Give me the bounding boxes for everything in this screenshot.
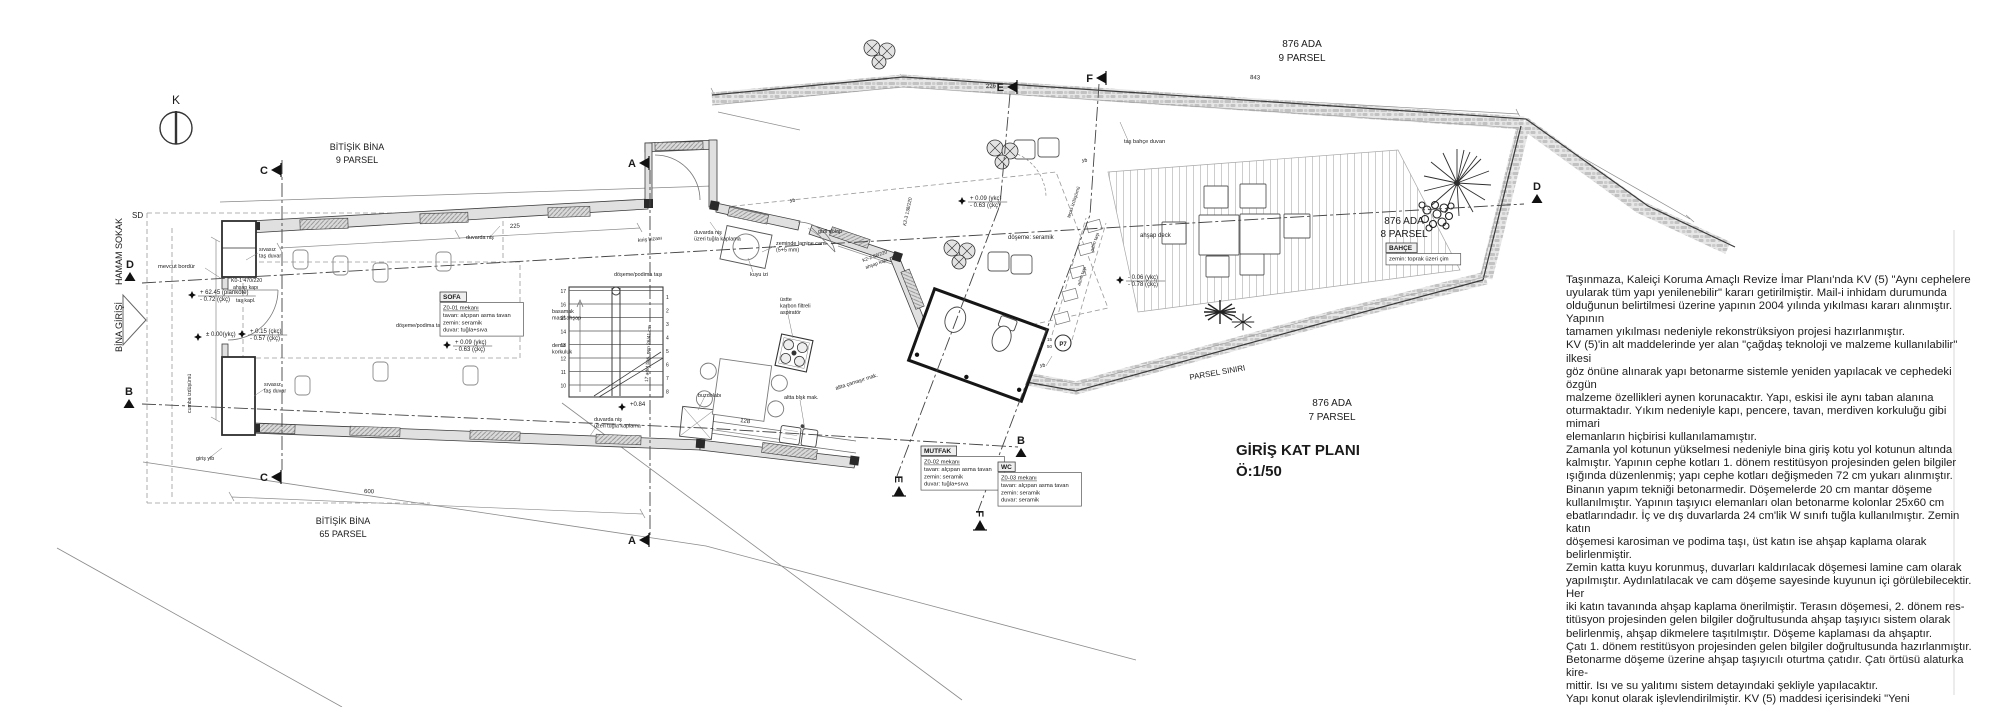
- section-c-top-letter: C: [260, 165, 268, 177]
- label-bitisik-bina-9: BİTİŞİK BİNA9 PARSEL: [330, 142, 385, 165]
- ann-mevcut-bordur: mevcut bordür: [158, 264, 195, 270]
- room-sofa-line-3: duvar: tuğla+sıva: [443, 328, 488, 334]
- ann-kiris: kiriş hizası: [638, 235, 663, 243]
- north-letter: K: [172, 93, 180, 107]
- room-sofa-line-2: zemin: seramik: [443, 320, 482, 326]
- room-mutfak-line-3: duvar: tuğla+sıva: [924, 482, 969, 488]
- room-mutfak-line-0: Z0-02 mekanı: [924, 460, 960, 466]
- room-sofa-line-1: tavan: alçıpan asma tavan: [443, 313, 511, 319]
- agave-icon: [1204, 300, 1254, 330]
- ann-p7-15: 15: [1047, 337, 1053, 342]
- ann-yb-2: yb: [790, 198, 796, 204]
- ann-ahsap-deck: ahşap deck: [1140, 233, 1172, 239]
- ann-podima-2: döşeme/podima taşı: [614, 272, 663, 278]
- label-parsel-siniri: PARSEL SINIRI: [1189, 363, 1246, 382]
- section-d-right-letter: D: [1533, 181, 1541, 193]
- label-hamam-sokak: HAMAM SOKAK: [114, 218, 124, 285]
- label-876-ada-9: 876 ADA9 PARSEL: [1278, 39, 1325, 64]
- stair-number-left: 13: [560, 343, 566, 349]
- label-876-ada-7: 876 ADA7 PARSEL: [1308, 398, 1355, 423]
- ann-podima-1: döşeme/podima taşı: [396, 323, 445, 329]
- room-bahce-line-0: zemin: toprak üzeri çim: [1389, 257, 1449, 263]
- section-a-bottom: A: [628, 533, 649, 547]
- section-d-left: D: [125, 259, 136, 281]
- room-mutfak-title: MUTFAK: [924, 448, 951, 455]
- wc-room: [909, 289, 1048, 401]
- dim-226: 226: [986, 83, 997, 90]
- dim-128: 128: [740, 418, 751, 425]
- ann-sivasiz-2: sıvasıztaş duvar: [264, 382, 286, 394]
- ann-aspirator: üsttekarbon filtreliaspiratör: [780, 297, 811, 316]
- section-a-top-letter: A: [628, 158, 636, 170]
- label-bitisik-bina-65: BİTİŞİK BİNA65 PARSEL: [316, 516, 371, 539]
- room-sofa-line-0: Z0-01 mekanı: [443, 306, 479, 312]
- section-d-left-letter: D: [126, 259, 134, 271]
- section-f-top: F: [1086, 71, 1106, 85]
- ann-blsk-mak: altta blşk mak.: [784, 395, 818, 401]
- stair-number-left: 10: [560, 384, 566, 390]
- palm-tree-icon: [1424, 149, 1491, 216]
- ann-k2-3: K2-3 138/220: [902, 197, 914, 227]
- stair-number-right: 2: [666, 309, 669, 315]
- section-b-left: B: [124, 386, 135, 408]
- stair-number-left: 11: [561, 370, 566, 376]
- dim-600: 600: [364, 489, 375, 495]
- level-giris-sifir-text: ± 0.00(ykç): [206, 332, 236, 338]
- stair-number-left: 17: [560, 289, 566, 295]
- ann-camasir-mak: altta çamaşır mak.: [835, 373, 879, 392]
- level-sofa-text: + 0.09 (ykç)- 0.63 (çkç): [455, 340, 487, 353]
- room-mutfak-line-1: tavan: alçıpan asma tavan: [924, 467, 992, 473]
- level-bahce: - 0.06 (ykç)- 0.78 (çkç): [1116, 275, 1165, 288]
- room-sofa: SOFAZ0-01 mekanıtavan: alçıpan asma tava…: [440, 292, 523, 336]
- refrigerator: [680, 406, 715, 439]
- dim-843: 843: [1250, 75, 1261, 82]
- ann-teras-izdusumu: teras izdüşümü: [1066, 186, 1082, 219]
- ann-tas-kapl: taş kapl.: [236, 298, 255, 304]
- room-bahce-title: BAHÇE: [1389, 245, 1413, 252]
- stair-number-right: 8: [666, 390, 669, 396]
- level-teras-text: + 0.09 (ykç)- 0.63 (çkç): [970, 196, 1002, 209]
- stair-number-right: 7: [666, 376, 669, 382]
- room-sofa-title: SOFA: [443, 294, 461, 301]
- stair-number-left: 12: [560, 357, 566, 363]
- ann-giris-yib: giriş yib: [196, 456, 214, 462]
- ann-kuyu-izi: kuyu izi: [750, 272, 768, 278]
- ann-tas-bahce: taş bahçe duvarı: [1124, 139, 1166, 145]
- ann-doseme-seramik: döşeme: seramik: [1008, 235, 1055, 241]
- notes-text: Taşınmaza, Kaleiçi Koruma Amaçlı Revize …: [1566, 274, 1974, 707]
- stair-number-right: 1: [666, 295, 669, 301]
- label-bina-girisi: BİNA GİRİŞİ: [114, 302, 124, 352]
- section-b-right-letter: B: [1017, 435, 1025, 447]
- floor-plan-sheet: BİTİŞİK BİNA9 PARSEL876 ADA9 PARSEL876 A…: [0, 0, 2000, 707]
- ann-p7-50: 50: [1047, 344, 1053, 349]
- room-wc-line-1: tavan: alçıpan asma tavan: [1001, 483, 1069, 489]
- section-c-bottom-letter: C: [260, 472, 268, 484]
- section-b-right: B: [1016, 435, 1027, 457]
- section-e-top-letter: E: [997, 82, 1004, 94]
- entrance-arrow-icon: [123, 295, 146, 345]
- section-a-bottom-letter: A: [628, 535, 636, 547]
- room-wc-line-3: duvar: seramik: [1001, 498, 1039, 504]
- stair-number-right: 3: [666, 322, 669, 328]
- plan-title-scale: Ö:1/50: [1236, 463, 1282, 480]
- level-084-text: +0.84: [630, 402, 646, 408]
- room-wc-title: WC: [1001, 464, 1012, 471]
- stair-number-left: 15: [560, 316, 566, 322]
- section-b-left-letter: B: [125, 386, 133, 398]
- ann-cumba: cumba izdüşümü: [187, 374, 193, 413]
- ann-lamine-cam: zeminde lamine cam(5+5 mm): [776, 241, 826, 253]
- section-d-right: D: [1532, 181, 1543, 203]
- ann-sivasiz-1: sıvasıztaş duvar: [259, 247, 281, 259]
- section-c-top: C: [260, 163, 281, 177]
- room-wc-line-0: Z0-03 mekanı: [1001, 476, 1037, 482]
- level-sofa: + 0.09 (ykç)- 0.63 (çkç): [443, 340, 492, 353]
- stair-number-right: 5: [666, 349, 669, 355]
- ann-duvarda-nis: duvarda niş: [466, 235, 494, 241]
- leader-lines: [205, 122, 1130, 459]
- stair-number-left: 14: [560, 330, 566, 336]
- plan-title: GİRİŞ KAT PLANI: [1236, 442, 1360, 459]
- room-wc: WCZ0-03 mekanıtavan: alçıpan asma tavanz…: [998, 462, 1081, 506]
- level-giris-015: + 0.15 (çkç)- 0.57 (çkç): [238, 329, 287, 342]
- ann-yb-1: yb: [1082, 158, 1088, 164]
- room-mutfak-line-2: zemin: seramik: [924, 474, 963, 480]
- section-f-bottom: F: [973, 510, 987, 530]
- section-f-bottom-letter: F: [973, 510, 985, 517]
- section-f-top-letter: F: [1086, 73, 1093, 85]
- north-arrow-icon: [160, 111, 192, 144]
- room-mutfak: MUTFAKZ0-02 mekanıtavan: alçıpan asma ta…: [921, 446, 1004, 490]
- level-bahce-text: - 0.06 (ykç)- 0.78 (çkç): [1128, 275, 1158, 288]
- ann-nis-tugla-2: duvarda nişüzeri tuğla kaplama: [594, 417, 641, 429]
- level-teras: + 0.09 (ykç)- 0.63 (çkç): [958, 196, 1007, 209]
- section-e-bottom: E: [892, 476, 906, 496]
- label-p7: P7: [1059, 342, 1067, 348]
- label-sd: SD: [132, 211, 143, 220]
- ann-yb-3: yb: [1040, 363, 1046, 369]
- level-giris-015-text: + 0.15 (çkç)- 0.57 (çkç): [250, 329, 282, 342]
- level-084: +0.84: [618, 402, 646, 411]
- stair-number-left: 16: [560, 303, 566, 309]
- stove: [775, 334, 813, 372]
- room-wc-line-2: zemin: seramik: [1001, 490, 1040, 496]
- entrance-blocks: [222, 221, 256, 435]
- stair-number-right: 6: [666, 363, 669, 369]
- section-e-bottom-letter: E: [892, 476, 904, 483]
- dim-225: 225: [510, 223, 521, 230]
- stair-number-right: 4: [666, 336, 669, 342]
- ann-gizli-dolap: gizli dolap: [818, 229, 842, 235]
- ann-buzdolabi: buzdolabı: [698, 393, 721, 399]
- ann-kapi-kodu: K0-1 470/220: [231, 278, 262, 284]
